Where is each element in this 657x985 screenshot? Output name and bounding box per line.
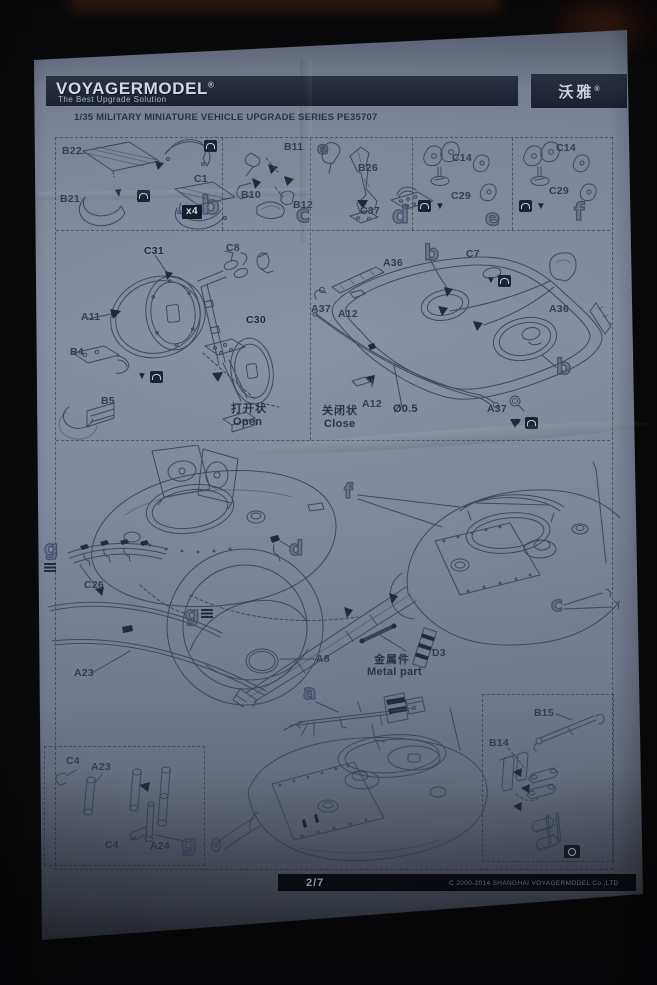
step-marker-g: g [185, 604, 199, 624]
part-label-c37: C37 [360, 206, 380, 217]
bend-icon [498, 275, 511, 287]
part-label-b15: B15 [534, 708, 554, 719]
attach-arrow-icon: ▼ [536, 202, 546, 212]
brand-cn-text: 沃雅® [558, 81, 599, 102]
row1-bottom-border [56, 230, 610, 231]
part-label-c4: C4 [105, 840, 119, 851]
step-letter-d: d [392, 203, 409, 227]
step-letter-g: g [181, 834, 197, 856]
attach-arrow-icon: ▼ [137, 372, 147, 382]
voyager-logo-icon [564, 845, 580, 858]
caption-wire-diameter: Ø0.5 [393, 404, 418, 415]
part-label-c29: C29 [451, 191, 471, 202]
part-label-a37: A37 [487, 404, 507, 415]
copyright-text: C 2000-2014 SHANGHAI VOYAGERMODEL Co.,LT… [449, 880, 619, 887]
page-number: 2/7 [306, 877, 324, 889]
registered-mark: ® [208, 80, 215, 89]
part-label-c29: C29 [549, 186, 569, 197]
bend-icon [204, 140, 217, 152]
part-label-b4: B4 [70, 347, 84, 358]
part-label-c14: C14 [452, 153, 472, 164]
caption-close-en: Close [324, 419, 355, 430]
caption-open-en: Open [233, 417, 262, 428]
diagram-hatch-open [55, 235, 310, 440]
part-label-c26: C26 [84, 580, 104, 591]
part-label-a23: A23 [74, 668, 94, 679]
bend-icon [519, 200, 532, 212]
caption-metal-en: Metal part [367, 667, 422, 678]
step-letter-f: f [574, 200, 584, 224]
part-label-b22: B22 [62, 146, 82, 157]
registered-mark-cn: ® [594, 86, 599, 93]
step-marker-b: b [424, 243, 439, 264]
part-label-d3: D3 [432, 648, 446, 659]
caption-close-cn: 关闭状 [322, 406, 358, 417]
part-label-a11: A11 [81, 312, 100, 323]
brand-cn-banner: 沃雅® [531, 74, 627, 108]
part-label-b14: B14 [489, 738, 509, 749]
brand-tagline: The Best Upgrade Solution [58, 95, 167, 104]
series-title: 1/35 MILITARY MINIATURE VEHICLE UPGRADE … [74, 112, 377, 123]
quantity-badge: x4 [182, 205, 202, 219]
fold-icon [201, 609, 213, 619]
diagram-subassembly-row [55, 137, 612, 230]
part-label-a12: A12 [362, 399, 382, 410]
background-blur-top [70, 0, 500, 10]
attach-arrow-icon: ▼ [435, 202, 445, 212]
step-marker-e: e [317, 141, 329, 158]
part-label-a36: A36 [549, 304, 569, 315]
part-label-b5: B5 [101, 396, 115, 407]
part-label-a37: A37 [311, 304, 331, 315]
caption-metal-cn: 金属件 [374, 655, 410, 666]
part-label-a36: A36 [383, 258, 403, 269]
step-letter-e: e [485, 208, 500, 230]
photographed-instruction-sheet: VOYAGERMODEL® The Best Upgrade Solution … [0, 0, 657, 985]
part-label-a23: A23 [91, 762, 111, 773]
step-marker-f: f [344, 481, 353, 501]
part-label-c30: C30 [246, 315, 266, 326]
part-label-c7: C7 [466, 249, 480, 260]
bend-icon [150, 371, 163, 383]
step-marker-b: b [556, 357, 571, 378]
part-label-c8: C8 [226, 243, 240, 254]
part-label-c4: C4 [66, 756, 80, 767]
caption-open-cn: 打开状 [231, 404, 267, 415]
fold-icon [44, 563, 56, 573]
diagram-bottom-assembly [40, 690, 620, 875]
part-label-b26: B26 [358, 163, 378, 174]
part-label-c1: C1 [194, 174, 208, 185]
part-label-c14: C14 [556, 143, 576, 154]
step-marker-c: c [551, 594, 563, 614]
diagram-turret-fitting [40, 445, 620, 707]
paper-crease [300, 58, 312, 243]
attach-arrow-icon: ▼ [486, 276, 496, 286]
part-label-a8: A8 [316, 654, 330, 665]
part-label-c31: C31 [144, 246, 164, 257]
step-marker-g: g [44, 538, 58, 558]
brand-cn: 沃雅 [558, 84, 594, 101]
step-marker-d: d [289, 538, 303, 558]
logo-banner: VOYAGERMODEL® The Best Upgrade Solution [46, 76, 518, 106]
bend-icon [418, 200, 431, 212]
instruction-sheet-paper: VOYAGERMODEL® The Best Upgrade Solution … [0, 0, 657, 985]
part-label-a24: A24 [150, 841, 170, 852]
part-label-a12: A12 [338, 309, 358, 320]
